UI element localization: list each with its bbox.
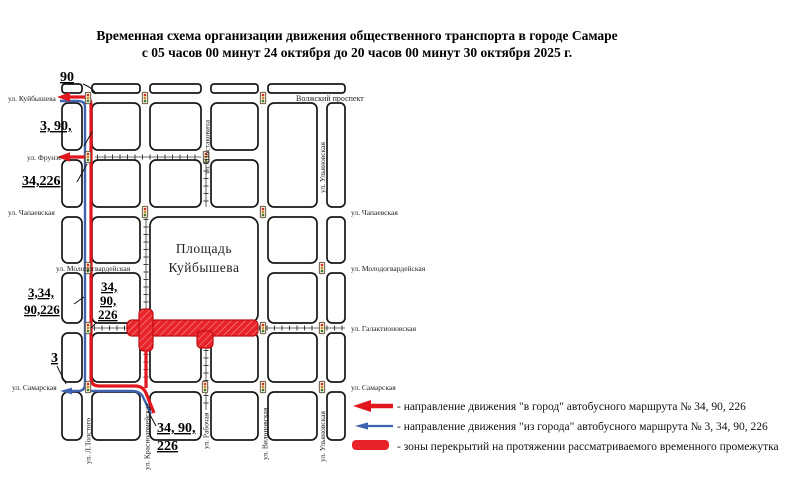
route-label-in-mid-line1: 34, (101, 279, 117, 294)
street-label-rabochaya: ул. Рабочая (202, 412, 211, 449)
street-label-vilonovskaya: ул. Вилоновская (261, 407, 270, 460)
map-svg: Временная схема организации движения общ… (0, 0, 800, 489)
traffic-light-icon (260, 381, 265, 392)
street-label-kuybysheva: ул. Куйбышева (8, 94, 57, 103)
in-city-arrowhead-icon (353, 400, 371, 412)
square-label-line1: Площадь (176, 241, 232, 256)
traffic-light-icon (85, 151, 90, 162)
street-label-krasnoarmeyskaya: ул. Красноармейская (143, 403, 152, 470)
legend-out-city-text: - направление движения "из города" автоб… (397, 421, 768, 433)
traffic-light-icon (260, 92, 265, 103)
street-label-ulyanovskaya-top: ул. Ульяновская (318, 142, 327, 193)
closure-zone-rabochaya (197, 331, 213, 348)
traffic-light-icon (319, 322, 324, 333)
traffic-light-icon (85, 381, 90, 392)
traffic-light-icon (260, 322, 265, 333)
street-label-shostakovicha: ул. Шостаковича (203, 119, 212, 174)
traffic-light-icon (85, 92, 90, 103)
route-label-3: 3 (51, 351, 58, 366)
traffic-light-icon (142, 92, 147, 103)
route-label-out-mid-line2: 90,226 (24, 302, 60, 317)
out-city-arrowhead-icon (355, 422, 368, 429)
route-label-exit-line1: 34, 90, (157, 421, 196, 436)
traffic-light-icon (319, 381, 324, 392)
street-label-chapaevskaya-right: ул. Чапаевская (351, 208, 398, 217)
route-label-34-226: 34,226 (22, 174, 61, 189)
legend-item-closures: - зоны перекрытий на протяжении рассматр… (352, 440, 779, 453)
traffic-light-icon (142, 206, 147, 217)
route-label-in-mid-line2: 90, (100, 293, 116, 308)
traffic-scheme-page: Временная схема организации движения общ… (0, 0, 800, 489)
traffic-light-icon (202, 381, 207, 392)
route-label-90: 90 (60, 70, 74, 85)
square-label-line2: Куйбышева (169, 260, 240, 275)
traffic-light-icon (260, 206, 265, 217)
street-label-frunze: ул. Фрунзе (27, 153, 62, 162)
legend-in-city-text: - направление движения "в город" автобус… (397, 401, 746, 413)
route-label-exit-line2: 226 (157, 439, 178, 454)
route-label-3-90: 3, 90, (40, 119, 72, 134)
closure-zone-swatch (352, 440, 389, 450)
street-label-samarskaya-right: ул. Самарская (351, 383, 396, 392)
street-label-galaktionovskaya: ул. Галактионовская (351, 324, 417, 333)
traffic-light-icon (85, 322, 90, 333)
street-label-chapaevskaya-left: ул. Чапаевская (8, 208, 55, 217)
legend: - направление движения "в город" автобус… (352, 400, 779, 453)
legend-closures-text: - зоны перекрытий на протяжении рассматр… (397, 441, 779, 453)
street-label-samarskaya-left: ул. Самарская (12, 383, 57, 392)
legend-item-out-city: - направление движения "из города" автоб… (355, 421, 768, 433)
title-line1: Временная схема организации движения общ… (96, 28, 617, 43)
street-label-ulyanovskaya-bottom: ул. Ульяновская (318, 411, 327, 462)
page-title: Временная схема организации движения общ… (96, 28, 617, 60)
route-label-out-mid-line1: 3,34, (28, 285, 54, 300)
street-label-molodogvardeyskaya-right: ул. Молодогвардейская (351, 264, 426, 273)
street-label-tolstogo: ул. Л.Толстого (84, 418, 93, 464)
traffic-light-icon (319, 262, 324, 273)
route-label-in-mid-line3: 226 (98, 307, 118, 322)
title-line2: с 05 часов 00 минут 24 октября до 20 час… (142, 45, 572, 60)
street-label-molodogvardeyskaya-left: ул. Молодогвардейская (56, 264, 131, 273)
street-label-volzhsky: Волжский проспект (296, 94, 364, 103)
legend-item-in-city: - направление движения "в город" автобус… (353, 400, 746, 413)
closure-zone-krasnoarmeyskaya (139, 309, 153, 351)
